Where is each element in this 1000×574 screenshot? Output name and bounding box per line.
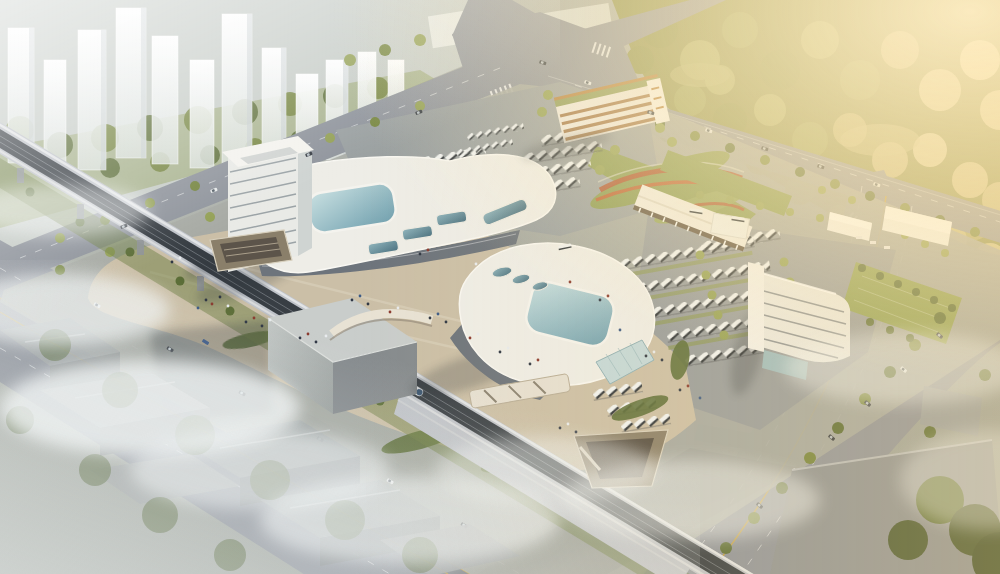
architectural-rendering — [0, 0, 1000, 574]
warm-tint — [0, 0, 1000, 574]
rendering-canvas — [0, 0, 1000, 574]
